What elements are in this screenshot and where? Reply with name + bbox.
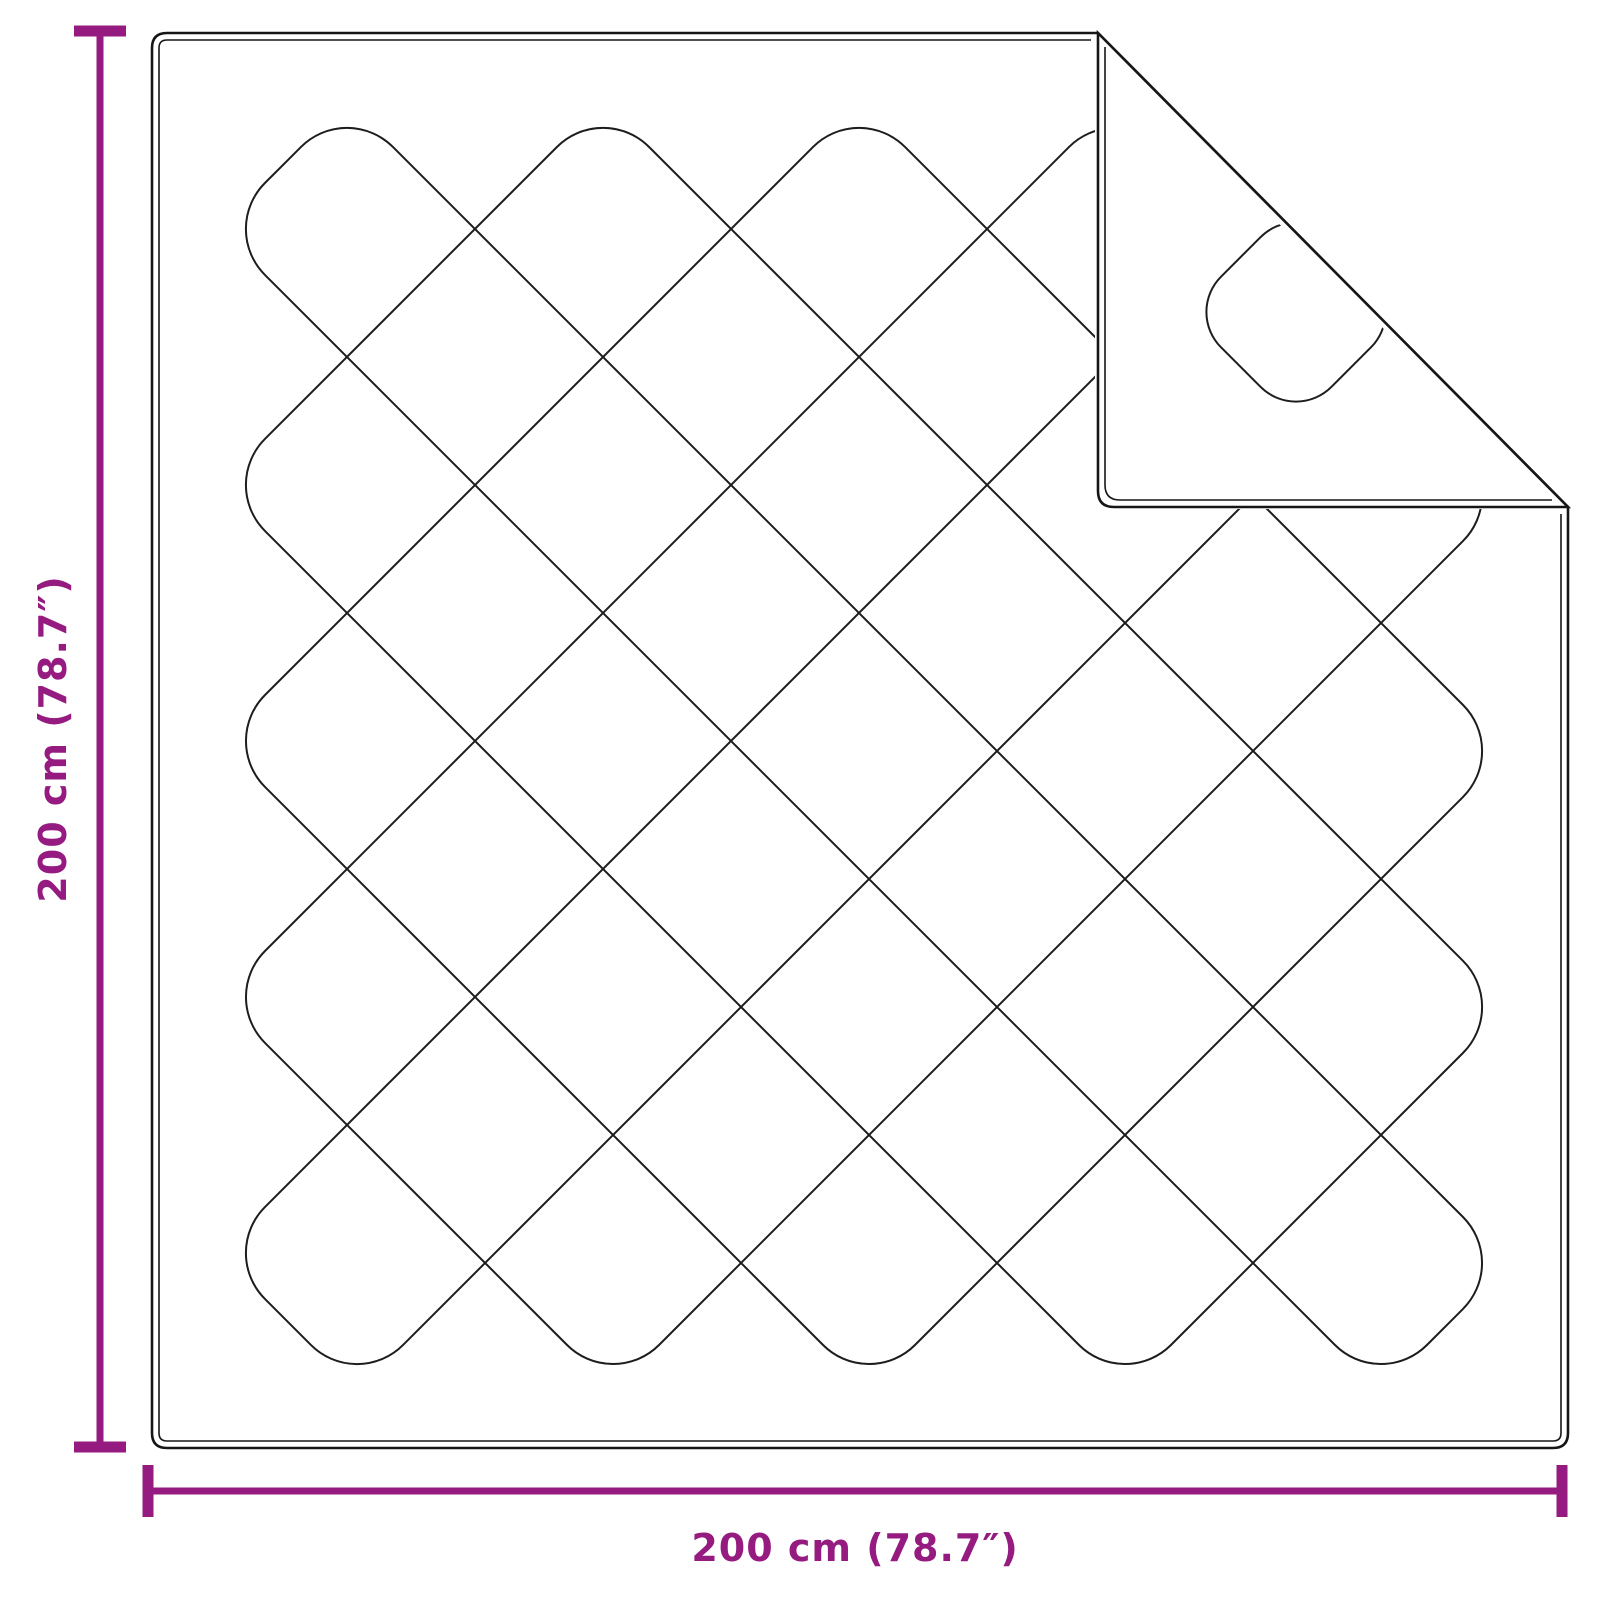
blanket-outline [152,33,1568,1448]
blanket-dimension-diagram: 200 cm (78.7″) 200 cm (78.7″) [0,0,1600,1600]
height-dimension-label: 200 cm (78.7″) [27,539,79,939]
height-dimension-line [74,31,126,1447]
diagram-canvas [0,0,1600,1600]
width-dimension-line [148,1465,1562,1517]
fold-flap [1098,33,1568,507]
width-dimension-label: 200 cm (78.7″) [605,1522,1105,1574]
